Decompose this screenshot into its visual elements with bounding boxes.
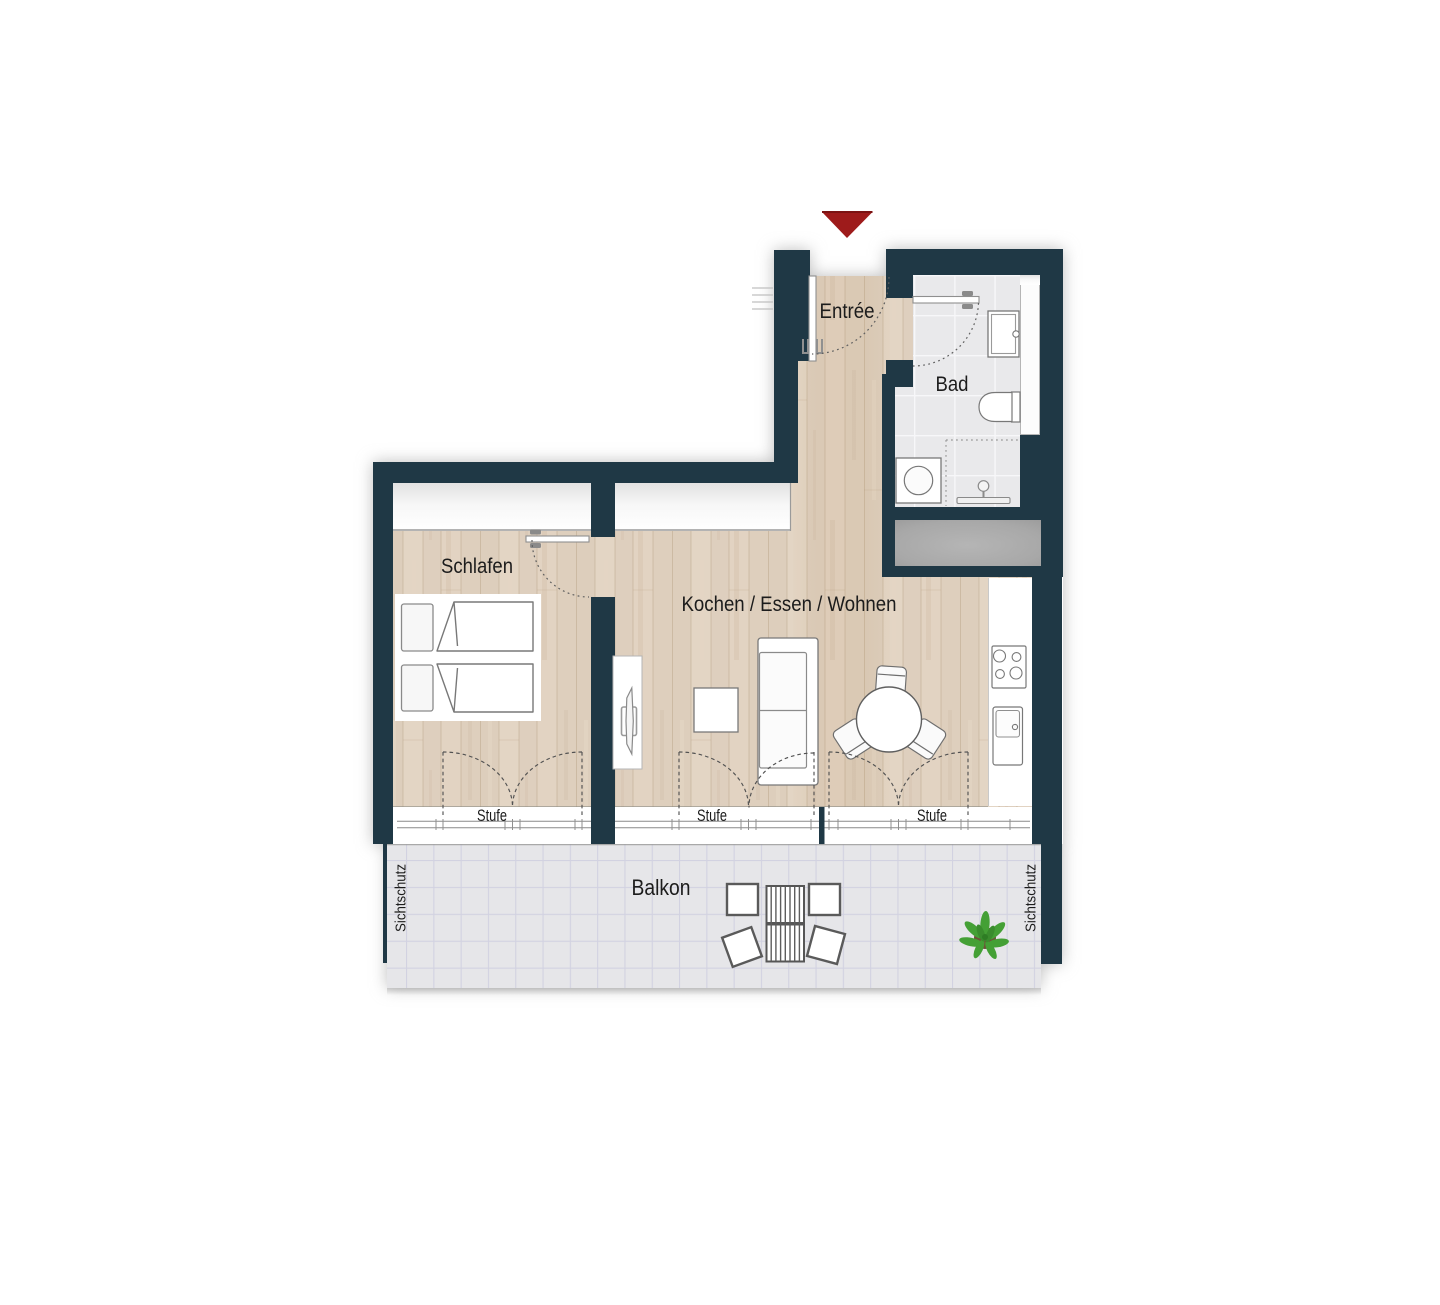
svg-text:Bad: Bad	[936, 373, 969, 396]
svg-text:Schlafen: Schlafen	[441, 555, 513, 578]
svg-text:Sichtschutz: Sichtschutz	[394, 864, 410, 932]
svg-text:Stufe: Stufe	[697, 806, 727, 825]
svg-text:Stufe: Stufe	[477, 806, 507, 825]
svg-text:Balkon: Balkon	[632, 875, 691, 900]
svg-text:Sichtschutz: Sichtschutz	[1024, 864, 1040, 932]
svg-text:Kochen / Essen / Wohnen: Kochen / Essen / Wohnen	[682, 593, 897, 616]
svg-text:Entrée: Entrée	[820, 300, 875, 323]
svg-text:Stufe: Stufe	[917, 806, 947, 825]
